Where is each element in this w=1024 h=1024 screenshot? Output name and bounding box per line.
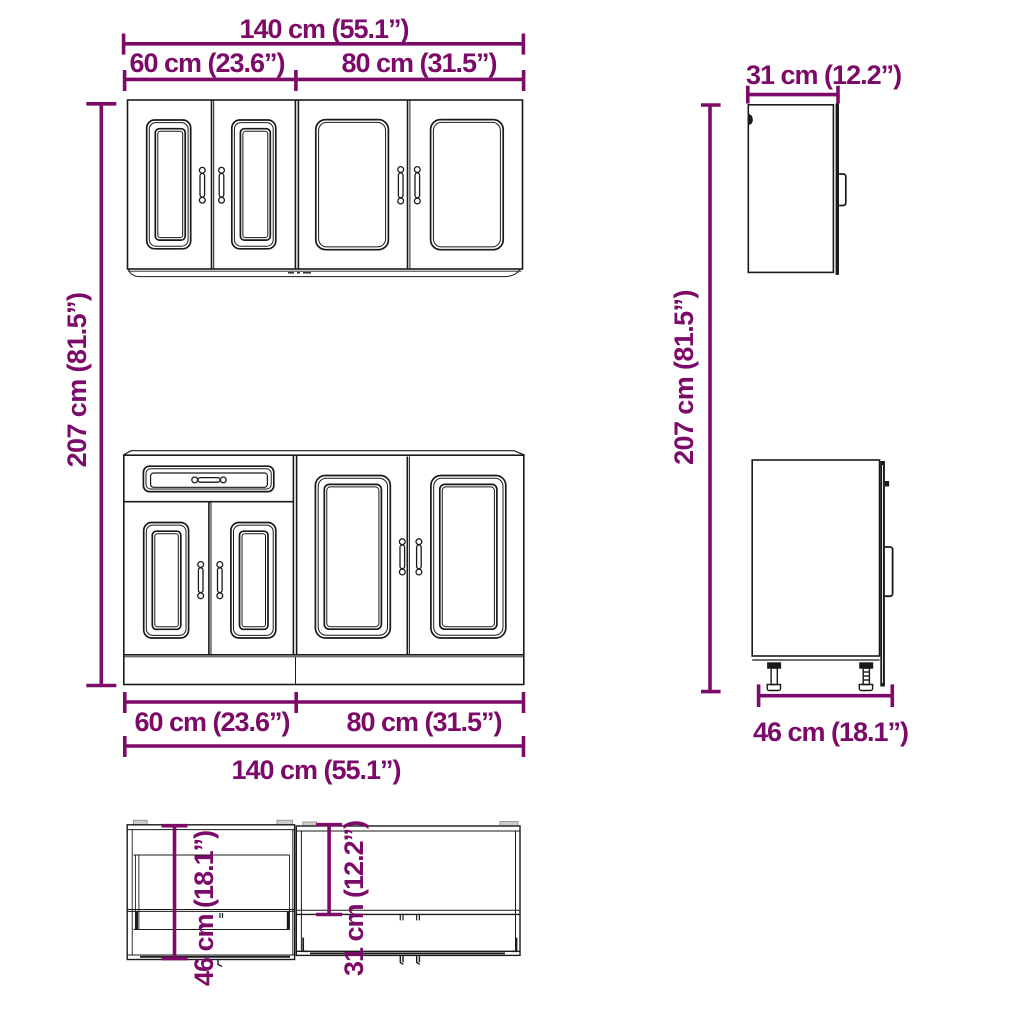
svg-text:140 cm (55.1”): 140 cm (55.1”) <box>231 755 400 785</box>
svg-text:140 cm (55.1”): 140 cm (55.1”) <box>239 14 408 44</box>
svg-text:207 cm (81.5”): 207 cm (81.5”) <box>669 290 699 465</box>
svg-text:46 cm (18.1”): 46 cm (18.1”) <box>189 831 219 986</box>
svg-text:31 cm (12.2”): 31 cm (12.2”) <box>339 821 369 976</box>
svg-text:80 cm (31.5”): 80 cm (31.5”) <box>346 707 501 737</box>
svg-text:80 cm (31.5”): 80 cm (31.5”) <box>341 48 496 78</box>
svg-text:60 cm (23.6”): 60 cm (23.6”) <box>134 707 289 737</box>
svg-text:31 cm (12.2”): 31 cm (12.2”) <box>746 60 901 90</box>
svg-text:60 cm (23.6”): 60 cm (23.6”) <box>129 48 284 78</box>
svg-text:207 cm (81.5”): 207 cm (81.5”) <box>62 293 92 468</box>
svg-text:46 cm (18.1”): 46 cm (18.1”) <box>753 717 908 747</box>
